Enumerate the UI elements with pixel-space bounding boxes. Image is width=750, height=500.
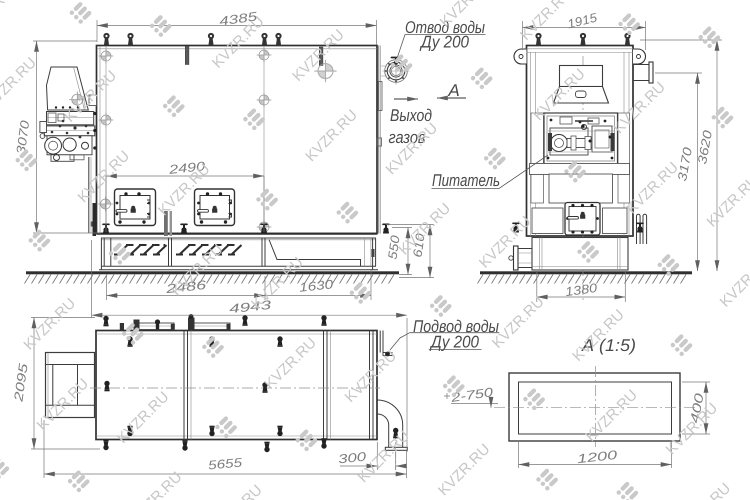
svg-text:Ду 200: Ду 200 [429, 333, 479, 352]
svg-text:Ду 200: Ду 200 [419, 33, 469, 52]
svg-text:Питатель: Питатель [432, 171, 500, 190]
svg-text:300: 300 [337, 450, 366, 467]
svg-text:5655: 5655 [208, 456, 243, 473]
svg-text:А: А [447, 81, 459, 100]
